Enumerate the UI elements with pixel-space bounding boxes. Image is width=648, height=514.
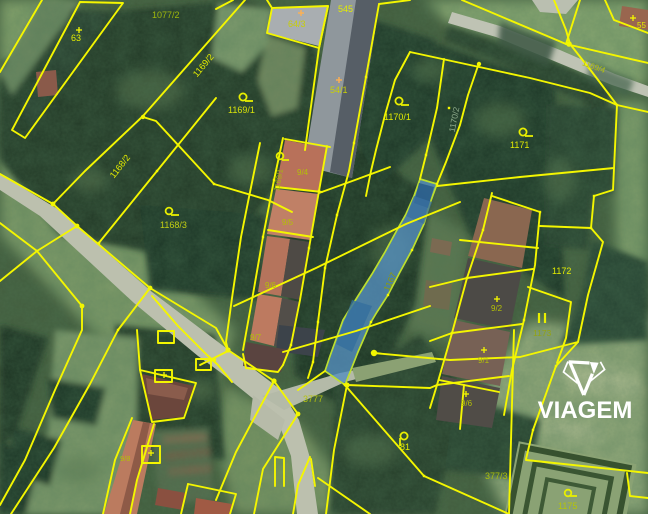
svg-text:1169/1: 1169/1 [228, 105, 255, 115]
svg-text:1171: 1171 [510, 140, 529, 150]
svg-text:1170/1: 1170/1 [384, 112, 411, 122]
svg-text:9/6: 9/6 [265, 281, 277, 290]
svg-text:9/5: 9/5 [282, 218, 294, 227]
svg-text:9/6: 9/6 [461, 399, 473, 408]
svg-text:54/1: 54/1 [330, 85, 348, 95]
svg-text:545: 545 [338, 4, 353, 14]
svg-text:64/3: 64/3 [288, 19, 306, 29]
svg-text:1173: 1173 [533, 328, 552, 338]
svg-text:9/7: 9/7 [250, 333, 262, 342]
svg-text:9/2: 9/2 [491, 304, 503, 313]
svg-text:9/8: 9/8 [120, 454, 130, 463]
svg-text:1168/3: 1168/3 [160, 220, 187, 230]
svg-text:1172: 1172 [552, 266, 571, 276]
svg-text:81: 81 [400, 442, 410, 452]
svg-text:1175: 1175 [558, 501, 577, 511]
svg-text:3777: 3777 [303, 394, 323, 404]
svg-text:1077/2: 1077/2 [152, 10, 180, 20]
svg-text:9/1: 9/1 [478, 356, 490, 365]
svg-text:55: 55 [637, 21, 646, 30]
svg-text:9/4: 9/4 [297, 168, 309, 177]
svg-text:VIAGEM: VIAGEM [538, 397, 633, 424]
svg-text:63: 63 [71, 33, 81, 43]
svg-text:377/3: 377/3 [485, 471, 508, 481]
